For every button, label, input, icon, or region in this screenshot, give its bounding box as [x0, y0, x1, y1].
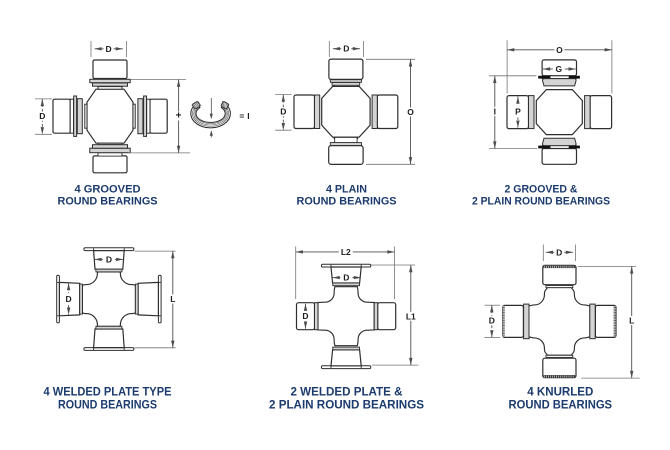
svg-text:2 WELDED PLATE &: 2 WELDED PLATE & [291, 384, 403, 398]
svg-text:2 PLAIN ROUND BEARINGS: 2 PLAIN ROUND BEARINGS [269, 397, 424, 411]
svg-text:4 GROOVED: 4 GROOVED [75, 183, 141, 195]
svg-text:D: D [106, 44, 112, 54]
svg-text:O: O [556, 45, 563, 55]
svg-text:ROUND BEARINGS: ROUND BEARINGS [509, 397, 613, 411]
svg-text:I: I [247, 111, 249, 121]
svg-text:D: D [489, 316, 495, 326]
svg-text:+: + [176, 111, 182, 122]
svg-text:ROUND BEARINGS: ROUND BEARINGS [297, 195, 397, 207]
svg-text:D: D [106, 254, 112, 264]
svg-text:L2: L2 [341, 247, 351, 257]
svg-text:D: D [343, 44, 349, 54]
svg-text:D: D [66, 294, 72, 304]
svg-text:ROUND BEARINGS: ROUND BEARINGS [58, 397, 157, 411]
svg-text:2 PLAIN ROUND BEARINGS: 2 PLAIN ROUND BEARINGS [472, 195, 610, 207]
svg-text:L: L [170, 294, 175, 304]
svg-text:=: = [239, 111, 244, 121]
svg-text:4 KNURLED: 4 KNURLED [527, 384, 593, 398]
svg-text:4 PLAIN: 4 PLAIN [326, 183, 367, 195]
svg-text:G: G [555, 64, 562, 74]
svg-text:D: D [343, 273, 349, 283]
svg-text:I: I [494, 106, 496, 116]
svg-text:P: P [515, 107, 521, 117]
svg-text:D: D [39, 111, 45, 121]
svg-text:O: O [407, 107, 414, 117]
svg-text:ROUND BEARINGS: ROUND BEARINGS [58, 195, 158, 207]
svg-text:L: L [629, 316, 634, 326]
svg-text:4 WELDED PLATE TYPE: 4 WELDED PLATE TYPE [44, 384, 172, 398]
svg-text:D: D [280, 107, 286, 117]
svg-text:D: D [302, 311, 308, 321]
svg-text:L1: L1 [406, 311, 416, 321]
svg-text:2 GROOVED &: 2 GROOVED & [505, 183, 578, 195]
svg-text:D: D [556, 247, 562, 257]
